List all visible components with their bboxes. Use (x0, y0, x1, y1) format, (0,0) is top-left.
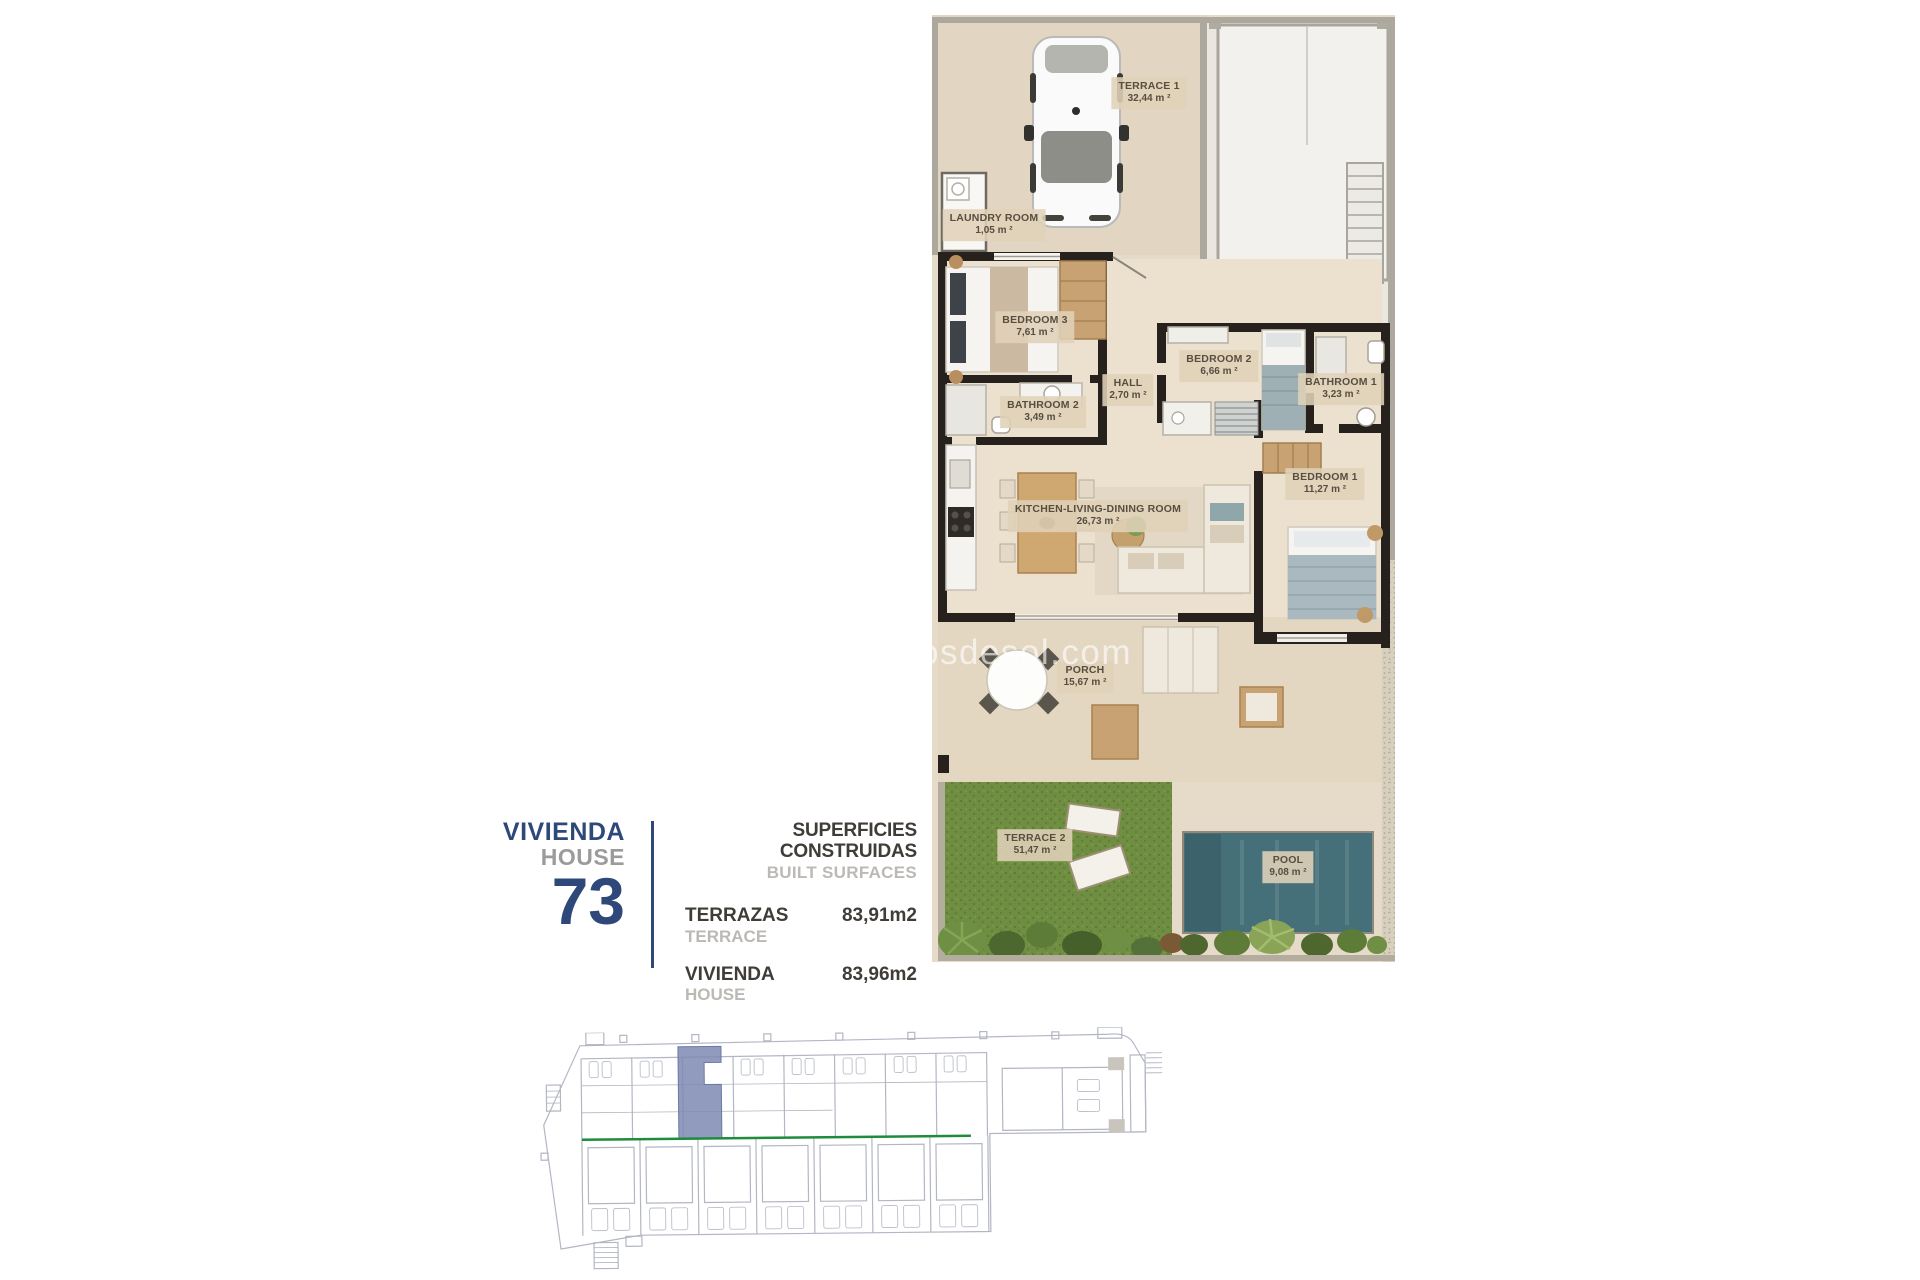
built-surfaces-table: SUPERFICIES CONSTRUIDAS BUILT SURFACES T… (685, 821, 917, 1005)
unit-title-es: VIVIENDA (420, 819, 625, 845)
porch-sofa-icon (1143, 627, 1218, 693)
room-label-pool: POOL 9,08 m ² (1262, 851, 1313, 883)
room-label-hall: HALL 2,70 m ² (1102, 374, 1153, 406)
site-plan-drawing (532, 1027, 1166, 1272)
kitchen-sink-icon (950, 460, 970, 488)
room-label-bedroom-3: BEDROOM 3 7,61 m ² (995, 311, 1074, 343)
divider-line (651, 821, 654, 968)
room-label-bathroom-1: BATHROOM 1 3,23 m ² (1298, 373, 1384, 405)
bedroom1-bed-icon (1288, 525, 1383, 623)
sink-icon (1357, 408, 1375, 426)
site-block (1109, 1119, 1125, 1132)
bedroom2-desk-icon (1168, 327, 1228, 343)
page: TERRACE 1 32,44 m ² LAUNDRY ROOM 1,05 m … (0, 0, 1920, 1280)
washing-machine-icon (947, 178, 969, 200)
stove-icon (948, 507, 974, 537)
unit-number: 73 (420, 874, 625, 928)
room-label-terrace-2: TERRACE 2 51,47 m ² (997, 829, 1072, 861)
room-label-bathroom-2: BATHROOM 2 3,49 m ² (1000, 396, 1086, 428)
hall-cabinets (1163, 402, 1258, 435)
site-block (1108, 1057, 1124, 1070)
kitchen-counter-icon (946, 445, 976, 590)
site-boundary (543, 1034, 1147, 1250)
unit-identifier: VIVIENDA HOUSE 73 (420, 819, 625, 929)
plan-bottom-wall (938, 955, 1395, 961)
floor-plan: TERRACE 1 32,44 m ² LAUNDRY ROOM 1,05 m … (932, 15, 1395, 962)
house-area-value: 83,96m2 (842, 964, 917, 986)
surfaces-header-es: SUPERFICIES CONSTRUIDAS (685, 821, 917, 863)
room-label-bedroom-1: BEDROOM 1 11,27 m ² (1285, 468, 1364, 500)
toilet-icon (1368, 341, 1384, 363)
terraces-area-value: 83,91m2 (842, 905, 917, 927)
porch-armchair-icon (1240, 687, 1283, 727)
room-label-laundry-room: LAUNDRY ROOM 1,05 m ² (943, 209, 1046, 241)
surfaces-row-house: VIVIENDA HOUSE 83,96m2 (685, 964, 917, 1005)
room-label-terrace-1: TERRACE 1 32,44 m ² (1111, 77, 1186, 109)
car-icon (1024, 37, 1129, 227)
surfaces-header-en: BUILT SURFACES (685, 863, 917, 883)
watermark: osdesol.com (932, 633, 1132, 673)
surfaces-row-terraces: TERRAZAS TERRACE 83,91m2 (685, 905, 917, 946)
room-label-bedroom-2: BEDROOM 2 6,66 m ² (1179, 350, 1258, 382)
highlighted-unit-73 (678, 1046, 722, 1138)
site-green-line (582, 1136, 971, 1140)
room-label-kitchen-living-dining: KITCHEN-LIVING-DINING ROOM 26,73 m ² (1008, 500, 1188, 532)
porch-coffee-table-icon (1092, 705, 1138, 759)
site-plan (532, 1027, 1166, 1272)
